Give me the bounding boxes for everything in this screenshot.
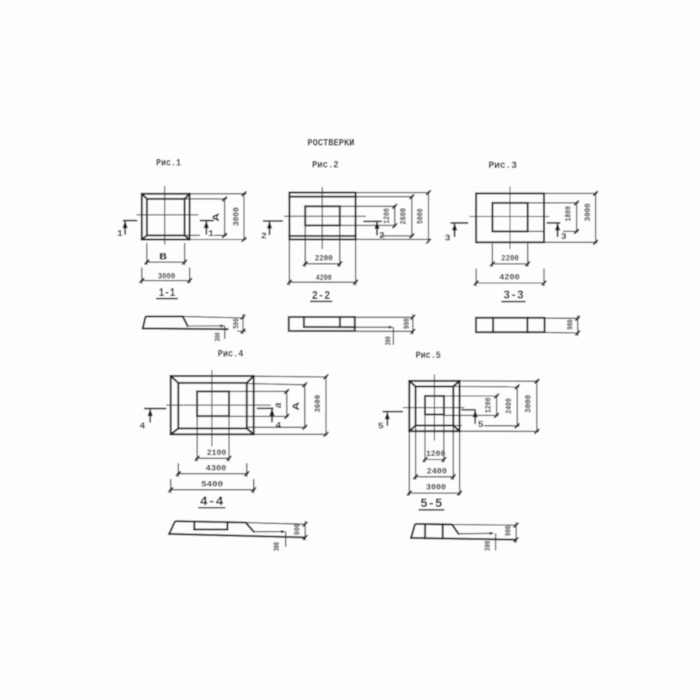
svg-text:500: 500 (233, 318, 242, 328)
svg-text:2400: 2400 (505, 398, 514, 414)
svg-text:3: 3 (445, 232, 451, 243)
svg-text:Рис.5: Рис.5 (416, 350, 441, 362)
svg-text:а: а (274, 402, 285, 408)
svg-text:3000: 3000 (525, 395, 534, 413)
svg-text:2: 2 (261, 230, 267, 241)
svg-text:4300: 4300 (206, 465, 227, 474)
svg-text:Рис.2: Рис.2 (312, 159, 339, 171)
svg-text:300: 300 (214, 332, 223, 341)
svg-text:4-4: 4-4 (200, 495, 224, 509)
svg-text:3-3: 3-3 (503, 289, 523, 303)
svg-text:300: 300 (484, 541, 493, 551)
svg-text:1200: 1200 (383, 208, 392, 224)
svg-text:1: 1 (208, 228, 214, 239)
svg-text:А: А (212, 213, 223, 221)
svg-text:Рис.3: Рис.3 (488, 160, 517, 172)
svg-text:3: 3 (561, 231, 567, 242)
svg-text:3000: 3000 (584, 203, 593, 221)
svg-text:Рис.1: Рис.1 (156, 158, 181, 170)
svg-text:5400: 5400 (201, 481, 223, 490)
svg-text:2200: 2200 (501, 255, 519, 264)
svg-text:3000: 3000 (158, 272, 176, 281)
svg-text:5: 5 (478, 419, 484, 430)
svg-text:1: 1 (117, 228, 123, 239)
svg-text:900: 900 (505, 526, 514, 536)
svg-text:4200: 4200 (316, 274, 332, 283)
svg-text:2400: 2400 (427, 467, 447, 476)
svg-text:4200: 4200 (499, 274, 519, 283)
svg-text:2600: 2600 (399, 208, 408, 225)
svg-text:3000: 3000 (426, 483, 446, 492)
svg-text:5000: 5000 (416, 208, 425, 224)
svg-text:300: 300 (385, 336, 394, 345)
svg-text:900: 900 (403, 318, 412, 329)
svg-text:2200: 2200 (315, 255, 333, 264)
svg-text:А: А (292, 402, 303, 410)
svg-text:4: 4 (139, 421, 145, 432)
svg-text:РОСТВЕРКИ: РОСТВЕРКИ (307, 139, 354, 150)
svg-text:3000: 3000 (232, 207, 241, 226)
svg-text:Рис.4: Рис.4 (218, 348, 244, 360)
svg-text:2100: 2100 (207, 449, 227, 458)
svg-text:В: В (159, 252, 167, 263)
svg-text:4: 4 (275, 420, 281, 431)
svg-text:900: 900 (567, 319, 576, 329)
svg-text:300: 300 (273, 542, 282, 551)
svg-text:1200: 1200 (484, 397, 493, 413)
svg-text:1800: 1800 (565, 206, 574, 222)
svg-text:3600: 3600 (314, 395, 323, 413)
svg-text:1200: 1200 (426, 450, 446, 459)
svg-text:900: 900 (293, 524, 302, 536)
svg-text:5: 5 (378, 421, 384, 432)
svg-text:5-5: 5-5 (420, 497, 442, 511)
